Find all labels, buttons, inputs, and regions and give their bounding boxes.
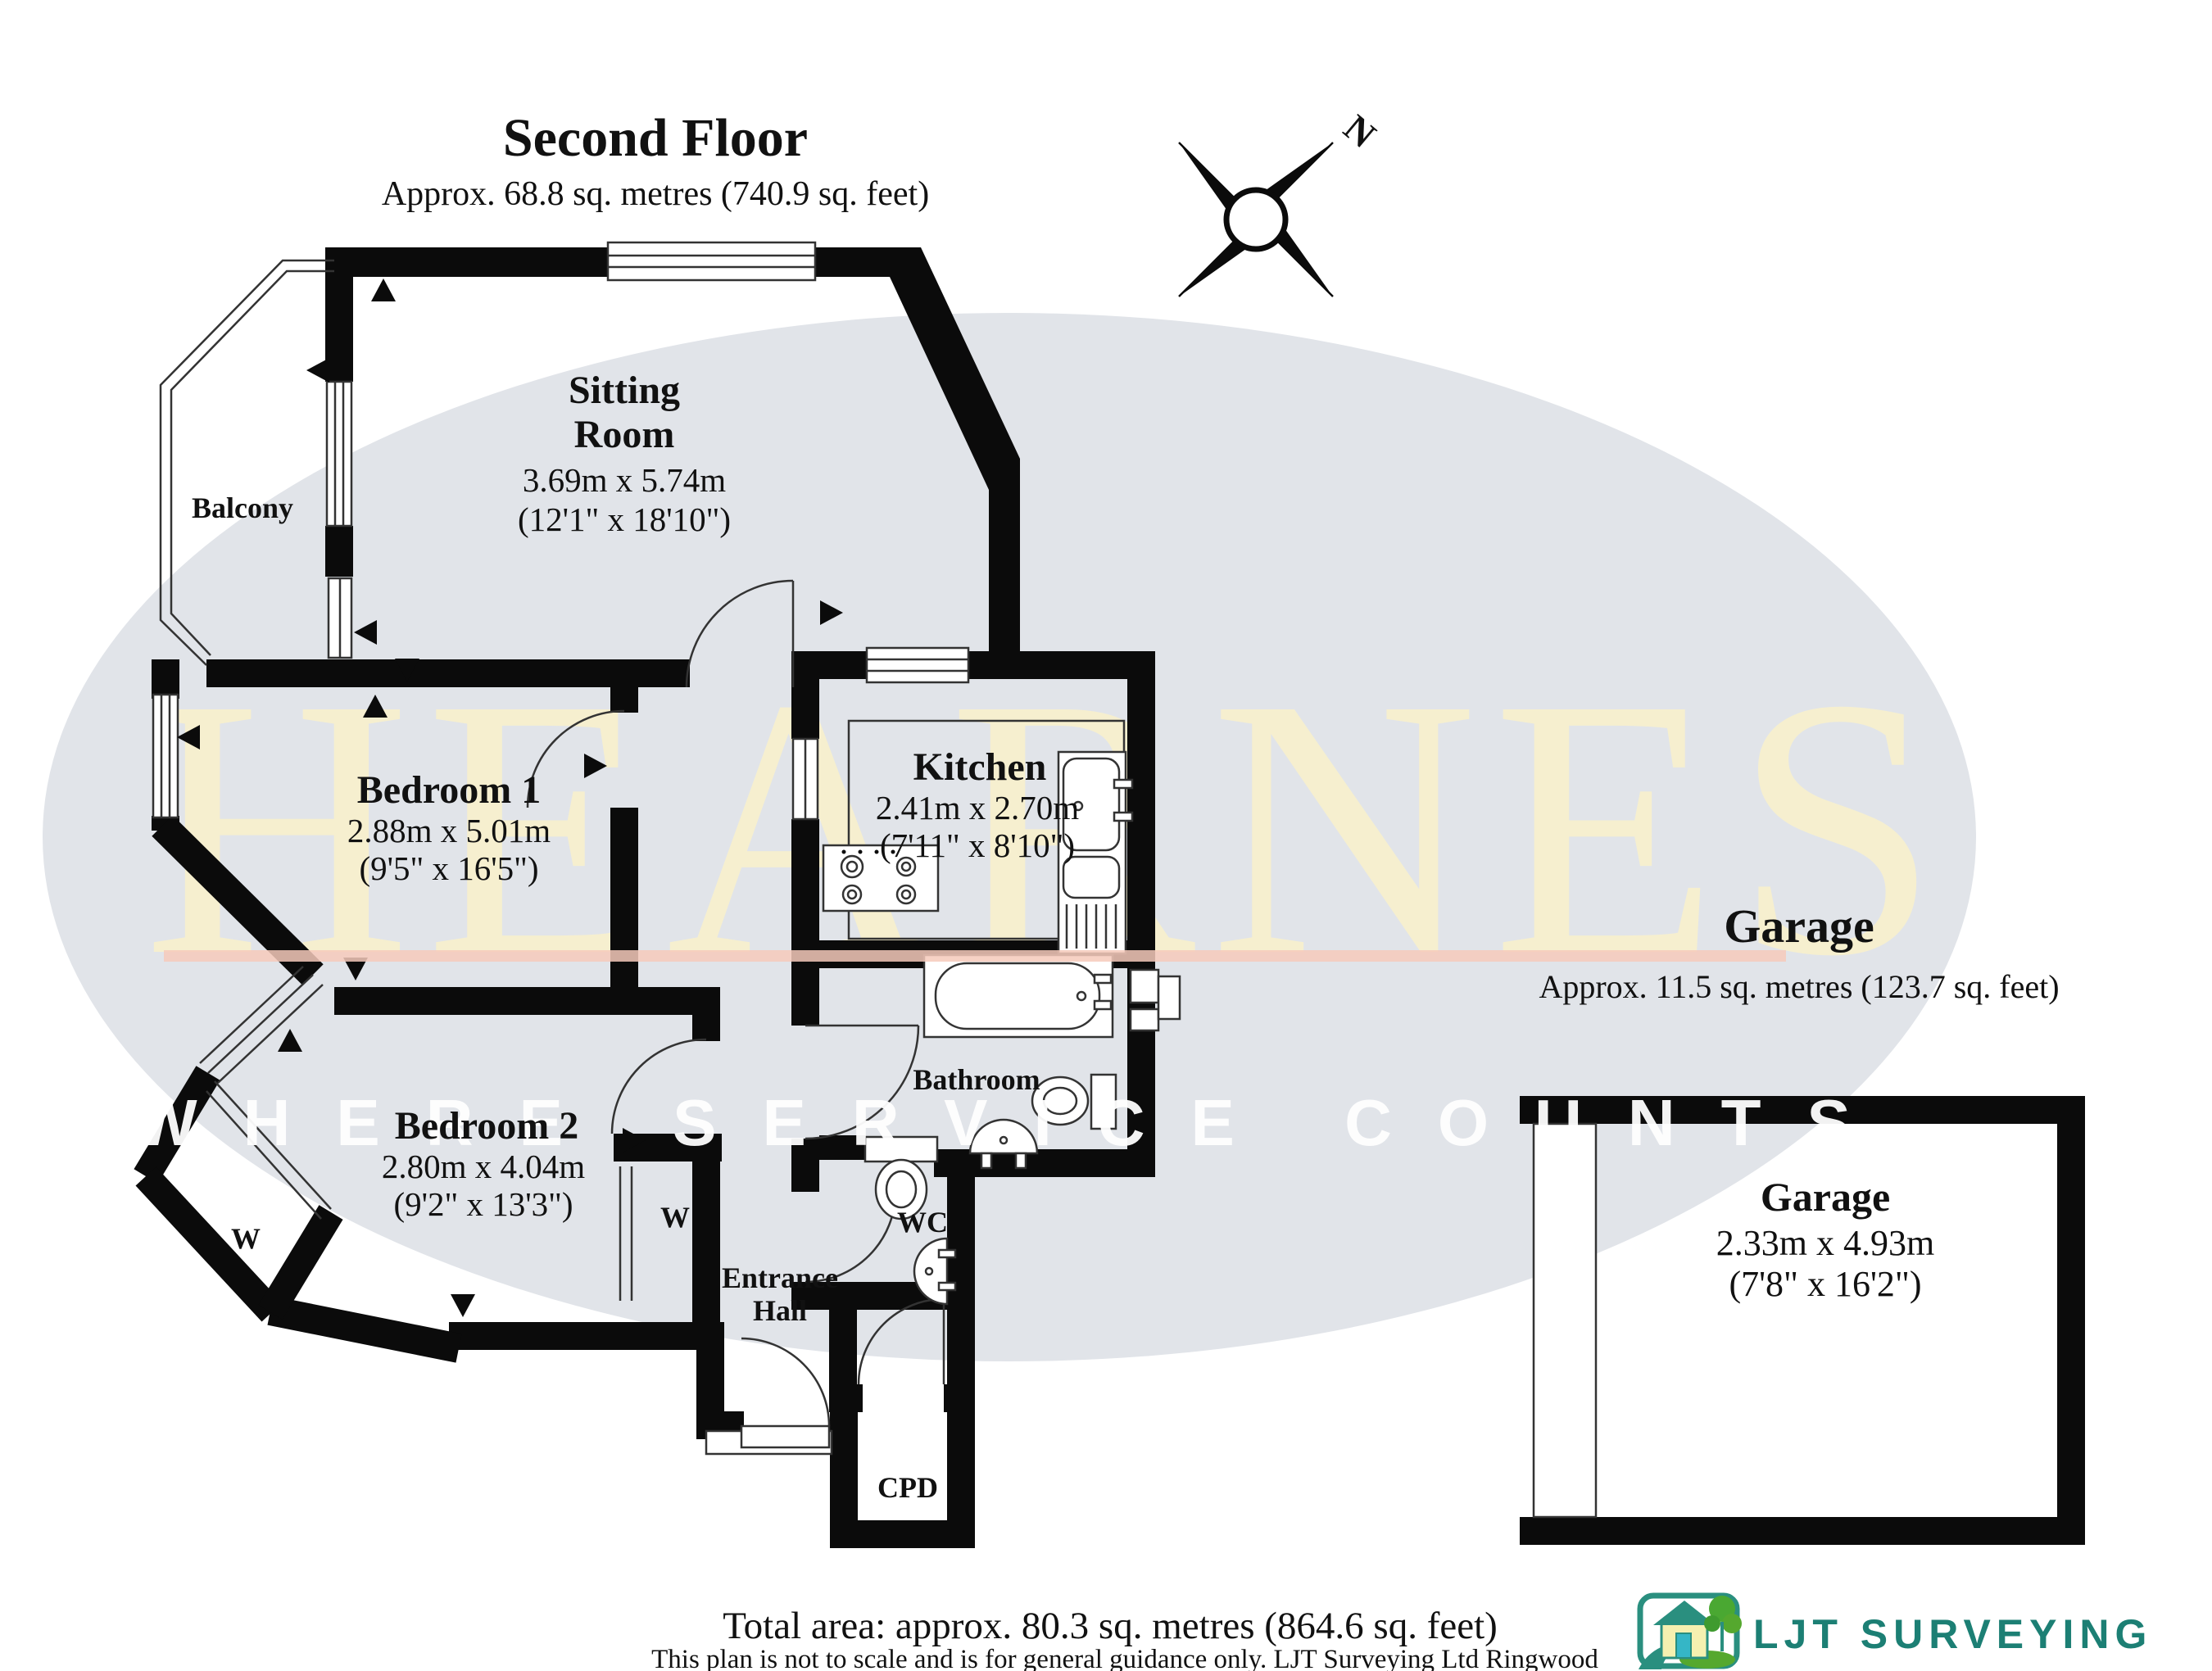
hatch-kitchen-left: [793, 739, 818, 819]
closet-bedroom2-label: W: [231, 1222, 261, 1255]
floorplan-page: HEARNES: [0, 0, 2212, 1671]
bath: [924, 955, 1113, 1037]
logo-house-icon: [1653, 1601, 1716, 1658]
kitchen-label: Kitchen: [913, 745, 1047, 789]
garage-dim-ft: (7'8" x 16'2"): [1729, 1264, 1921, 1304]
bedroom2-dim-ft: (9'2" x 13'3"): [393, 1185, 573, 1223]
compass: N: [1179, 106, 1384, 297]
total-area-text: Total area: approx. 80.3 sq. metres (864…: [723, 1605, 1498, 1647]
window-kitchen-top: [867, 648, 968, 682]
garage-room-label: Garage: [1761, 1174, 1890, 1220]
sitting-room-label-2: Room: [574, 413, 675, 456]
floorplan-canvas: HEARNES: [0, 0, 2212, 1671]
page-title: Second Floor: [503, 108, 808, 168]
page-subtitle: Approx. 68.8 sq. metres (740.9 sq. feet): [382, 175, 929, 213]
bedroom1-dim-m: 2.88m x 5.01m: [347, 812, 551, 849]
kitchen-dim-ft: (7'11" x 8'10"): [880, 826, 1075, 864]
compass-circle: [1226, 190, 1285, 249]
garage-heading: Garage: [1724, 899, 1874, 953]
logo-text: LJT Surveying: [1753, 1611, 2152, 1657]
bedroom1-label: Bedroom 1: [357, 768, 541, 812]
door-front: [706, 1338, 832, 1454]
bathroom-label: Bathroom: [913, 1063, 1040, 1096]
sitting-room-dim-m: 3.69m x 5.74m: [523, 461, 726, 499]
garage-door: [1534, 1124, 1596, 1517]
entrance-hall-label-1: Entrance: [722, 1261, 838, 1294]
disclaimer-text: This plan is not to scale and is for gen…: [651, 1645, 1598, 1671]
bedroom1-dim-ft: (9'5" x 16'5"): [359, 849, 538, 887]
watermark-underline: [164, 950, 1786, 962]
cpd-label: CPD: [877, 1471, 938, 1504]
garage-heading-area: Approx. 11.5 sq. metres (123.7 sq. feet): [1539, 968, 2059, 1005]
ljt-logo: LJT Surveying: [1639, 1596, 2152, 1669]
garage-dim-m: 2.33m x 4.93m: [1716, 1223, 1934, 1263]
window-sitting-left: [327, 382, 351, 526]
window-sitting-top: [608, 242, 815, 280]
sitting-room-dim-ft: (12'1" x 18'10"): [518, 500, 731, 538]
bedroom2-label: Bedroom 2: [395, 1104, 578, 1148]
window-bedroom1-left: [153, 695, 178, 817]
compass-north-label: N: [1336, 106, 1384, 156]
bedroom2-dim-m: 2.80m x 4.04m: [382, 1148, 585, 1185]
closet-hall-label: W: [660, 1201, 690, 1234]
balcony-label: Balcony: [192, 491, 293, 524]
entrance-hall-label-2: Hall: [753, 1294, 807, 1327]
balcony-door: [329, 578, 351, 658]
wc-label: WC: [897, 1206, 948, 1239]
kitchen-dim-m: 2.41m x 2.70m: [876, 789, 1079, 826]
sitting-room-label-1: Sitting: [569, 369, 680, 412]
